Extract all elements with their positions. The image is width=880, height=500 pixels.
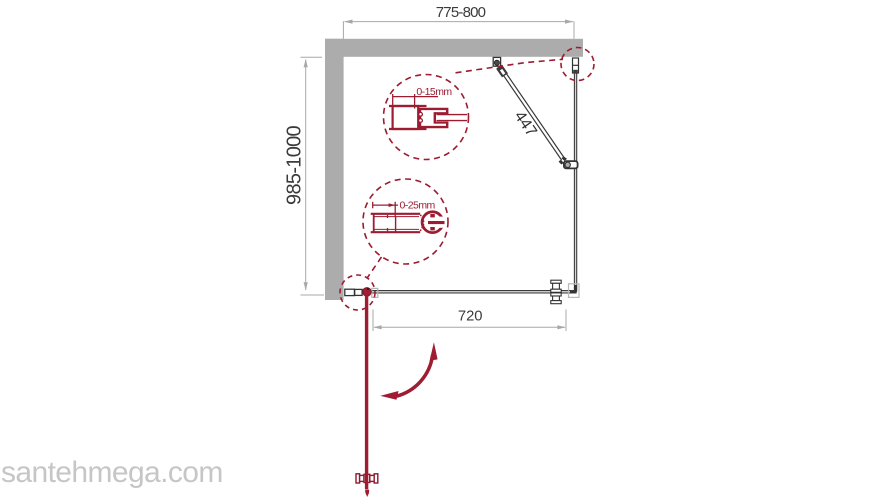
svg-text:santehmega.com: santehmega.com: [1, 456, 223, 489]
svg-text:985-1000: 985-1000: [283, 125, 305, 204]
svg-text:0-25mm: 0-25mm: [400, 199, 436, 211]
svg-text:720: 720: [458, 308, 483, 324]
svg-text:775-800: 775-800: [436, 4, 486, 21]
